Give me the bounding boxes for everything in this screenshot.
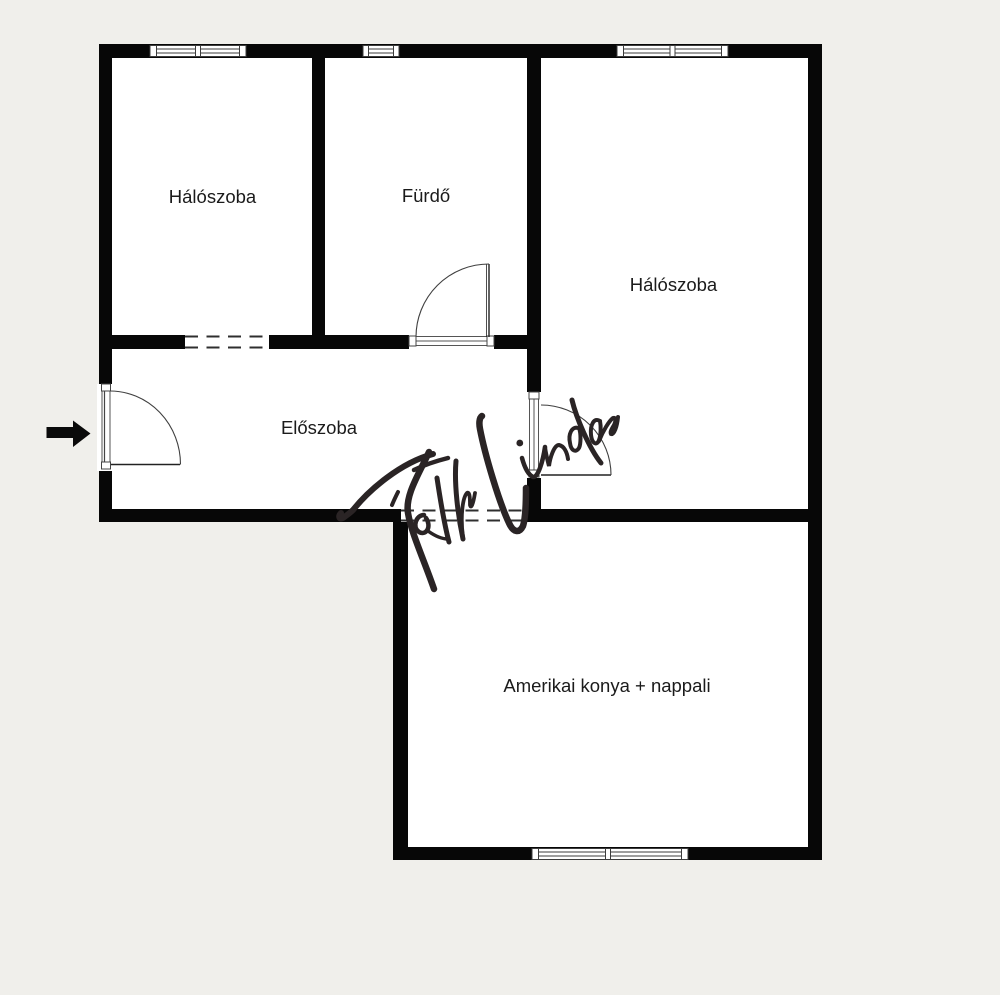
svg-text:Hálószoba: Hálószoba <box>169 186 257 207</box>
svg-text:Előszoba: Előszoba <box>281 417 358 438</box>
svg-text:Hálószoba: Hálószoba <box>630 274 718 295</box>
svg-text:Fürdő: Fürdő <box>402 185 450 206</box>
svg-text:Amerikai konya + nappali: Amerikai konya + nappali <box>503 675 710 696</box>
